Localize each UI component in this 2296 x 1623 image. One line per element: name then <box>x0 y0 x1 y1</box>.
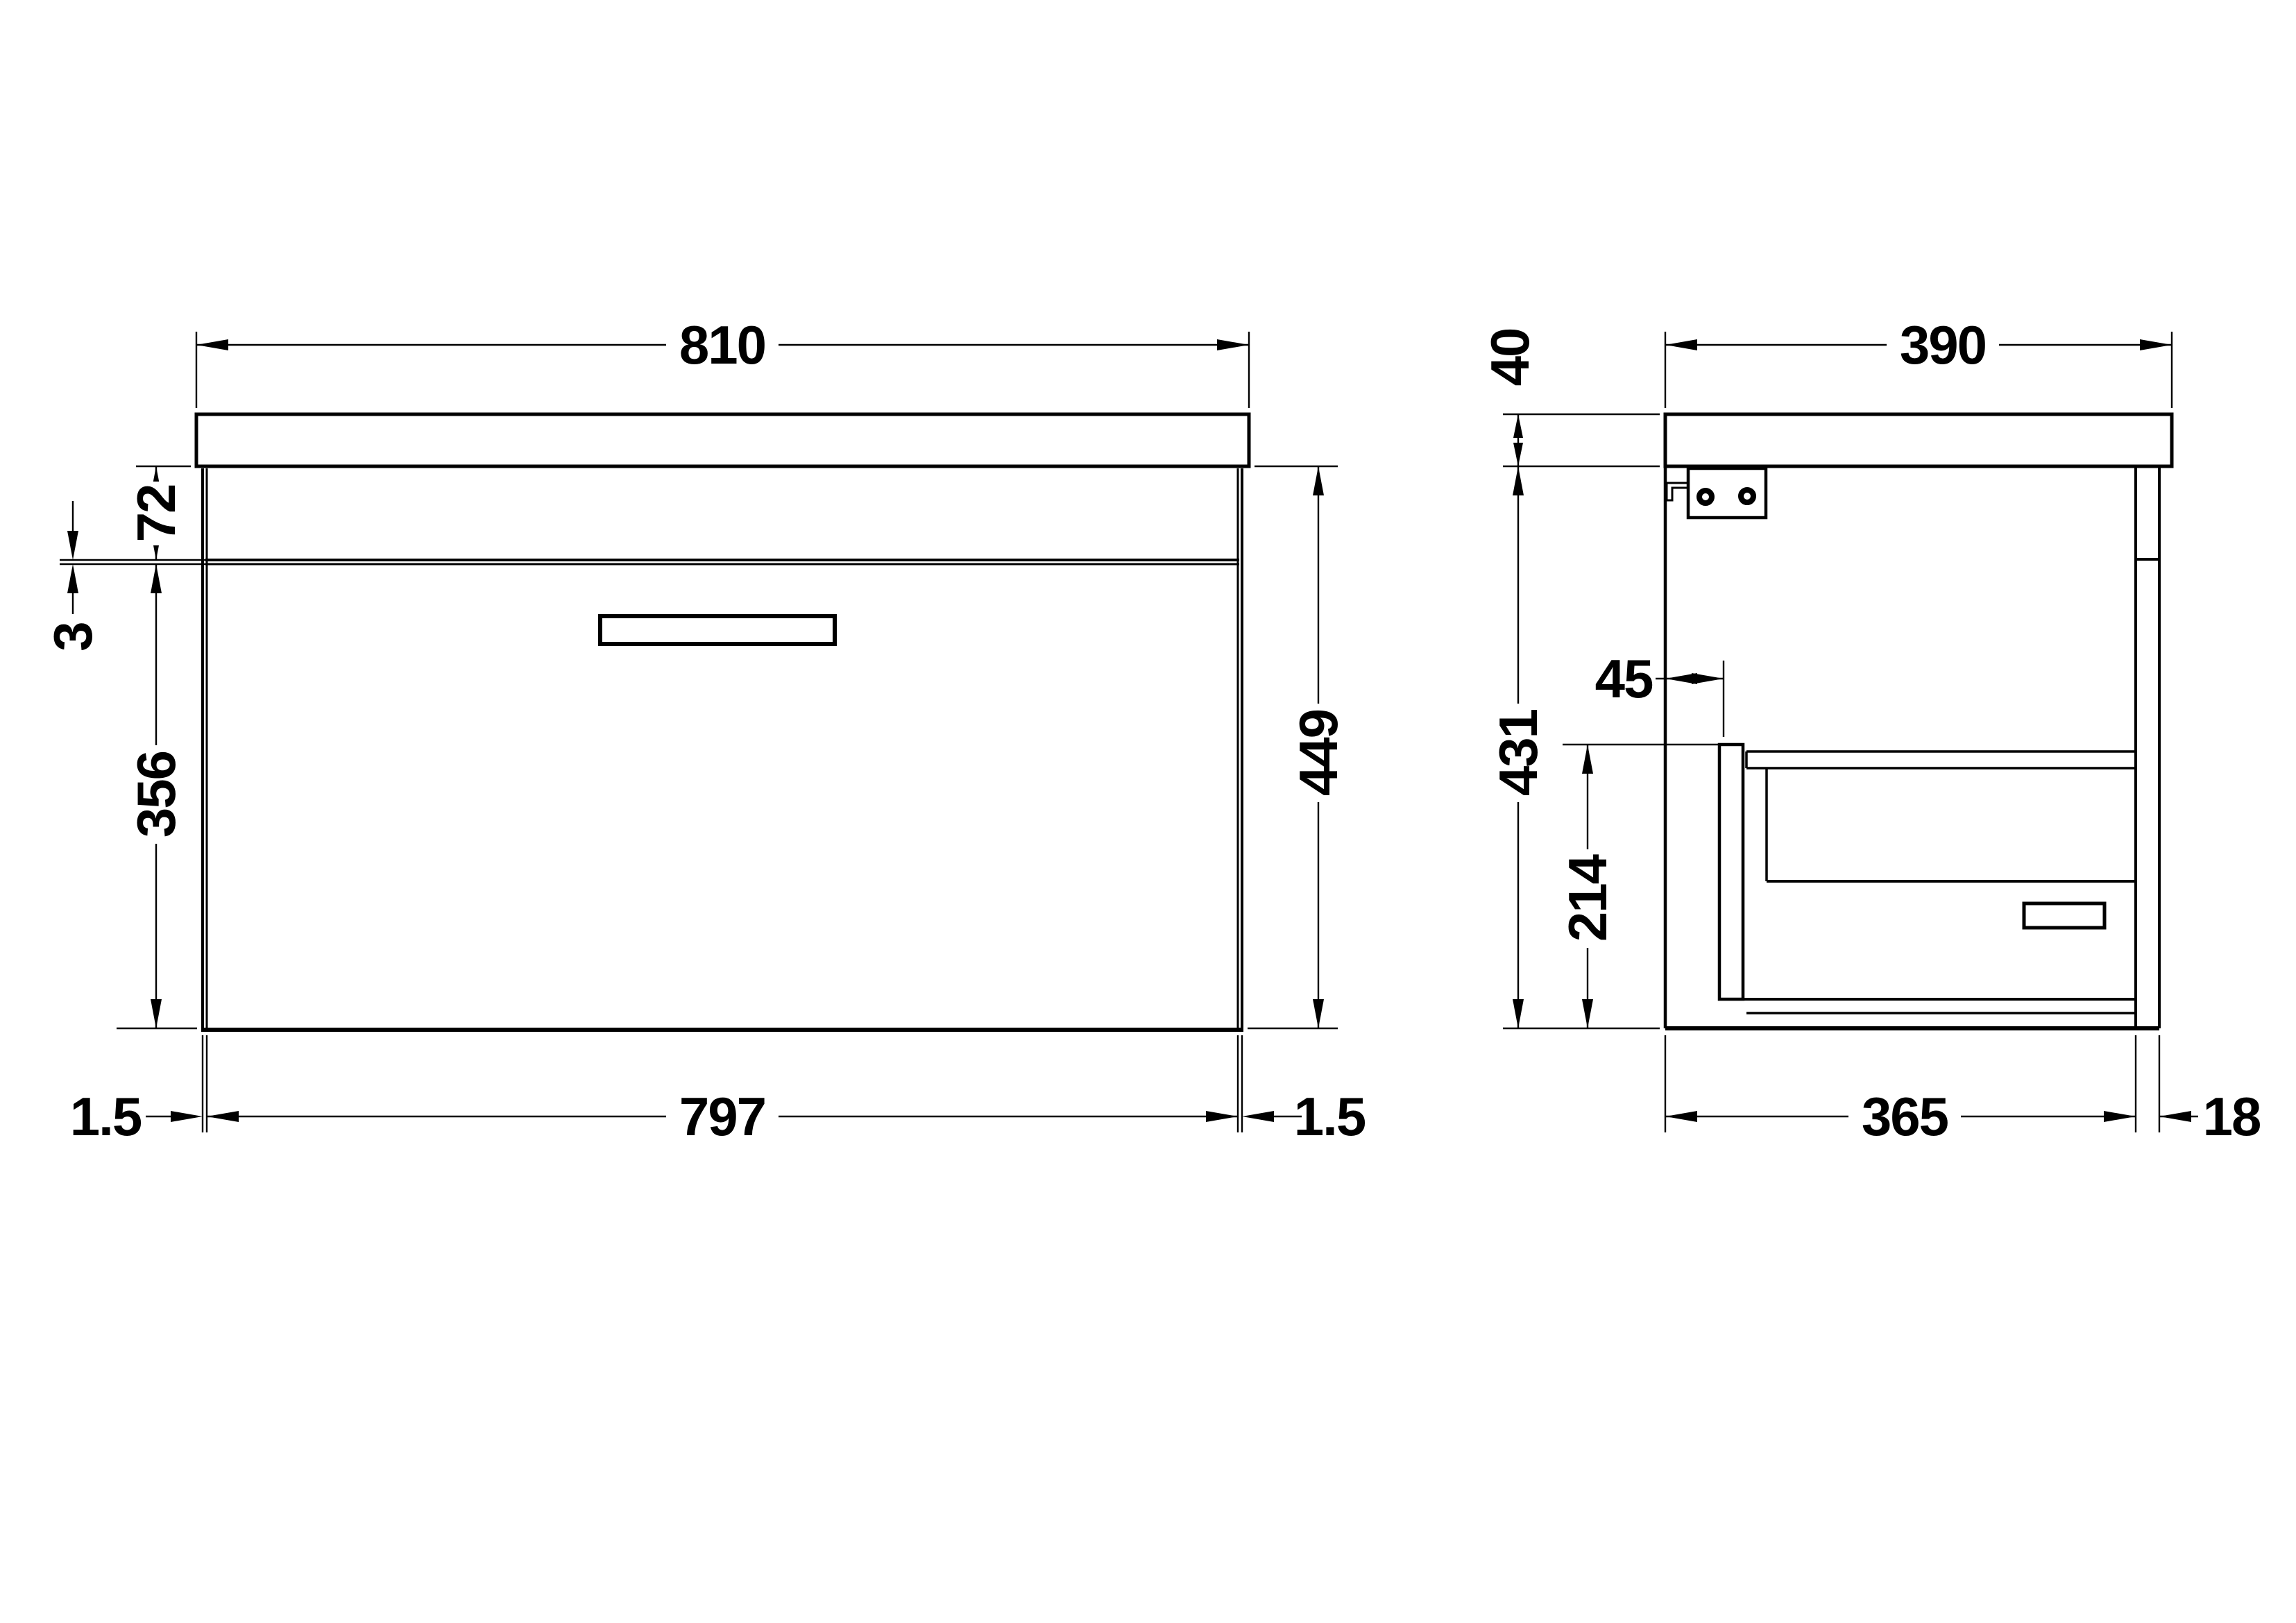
arrowhead-right <box>1217 339 1249 350</box>
arrowhead-up <box>67 564 78 593</box>
arrowhead-bottom <box>1513 999 1524 1028</box>
dimension-45: 45 <box>1595 648 1724 737</box>
dimension-1p5-left: 1.5 <box>70 1086 203 1147</box>
drawer-runner-bracket <box>2024 903 2104 928</box>
arrowhead-top <box>1513 466 1524 495</box>
dimension-label-214: 214 <box>1557 854 1618 942</box>
arrowhead-top <box>1513 414 1523 438</box>
dimension-label-3: 3 <box>42 622 103 651</box>
arrowhead <box>2159 1111 2191 1122</box>
dimension-label-449: 449 <box>1288 710 1349 796</box>
bracket-hole-left <box>1699 491 1712 503</box>
arrowhead-top <box>151 564 162 593</box>
arrowhead <box>1242 1111 1274 1122</box>
arrowhead-left <box>1665 1111 1697 1122</box>
bracket-hook-clip <box>1667 483 1688 500</box>
dimension-1p5-right: 1.5 <box>1242 1086 1366 1147</box>
arrowhead-left <box>207 1111 239 1122</box>
dimension-label-45: 45 <box>1595 648 1653 709</box>
dimension-label-365: 365 <box>1862 1086 1948 1147</box>
arrowhead-right <box>1692 673 1724 684</box>
dimension-label-40: 40 <box>1479 329 1540 386</box>
side-view: 390 40 431 45 <box>1479 314 2260 1147</box>
drawer-handle-recess <box>600 616 835 644</box>
arrowhead-right <box>1206 1111 1238 1122</box>
arrowhead-right <box>2104 1111 2136 1122</box>
arrowhead-bottom <box>1313 999 1324 1028</box>
arrowhead-bottom <box>1582 999 1593 1028</box>
dimension-label-431: 431 <box>1488 709 1549 796</box>
dimension-label-390: 390 <box>1900 314 1986 375</box>
arrowhead-right <box>2140 339 2172 350</box>
arrowhead-top <box>1582 745 1593 774</box>
arrowhead-bottom <box>151 999 162 1028</box>
arrowhead <box>171 1111 203 1122</box>
dimension-797: 797 <box>203 1035 1242 1147</box>
front-worktop-outline <box>196 414 1249 466</box>
dimension-label-356: 356 <box>126 751 187 838</box>
dimension-label-1p5-left: 1.5 <box>70 1086 142 1147</box>
dimension-label-72: 72 <box>126 485 187 543</box>
arrowhead-top <box>1313 466 1324 495</box>
dimension-214: 214 <box>1557 745 1718 1028</box>
bracket-hole-right <box>1741 490 1753 502</box>
dimension-label-18: 18 <box>2203 1086 2261 1147</box>
dimension-390: 390 <box>1665 314 2172 408</box>
drawer-box-front-panel <box>1719 745 1743 999</box>
dimension-365: 365 <box>1665 1035 2136 1147</box>
dimension-72: 72 <box>126 466 191 560</box>
side-worktop-outline <box>1665 414 2172 466</box>
front-view: 810 72 3 356 <box>42 314 1366 1147</box>
dimension-18: 18 <box>2159 1035 2260 1147</box>
dimension-label-810: 810 <box>679 314 765 375</box>
technical-drawing-page: 810 72 3 356 <box>0 0 2296 1623</box>
dimension-356: 356 <box>117 564 197 1028</box>
dimension-40: 40 <box>1479 329 1660 466</box>
dimension-449: 449 <box>1248 466 1349 1028</box>
arrowhead-bottom <box>1513 443 1523 466</box>
dimension-label-797: 797 <box>679 1086 765 1147</box>
arrowhead-left <box>1665 339 1697 350</box>
arrowhead-down <box>67 531 78 560</box>
arrowhead-left <box>196 339 228 350</box>
vanity-unit-dimension-drawing: 810 72 3 356 <box>0 0 2296 1623</box>
dimension-810: 810 <box>196 314 1249 408</box>
dimension-label-1p5-right: 1.5 <box>1294 1086 1366 1147</box>
